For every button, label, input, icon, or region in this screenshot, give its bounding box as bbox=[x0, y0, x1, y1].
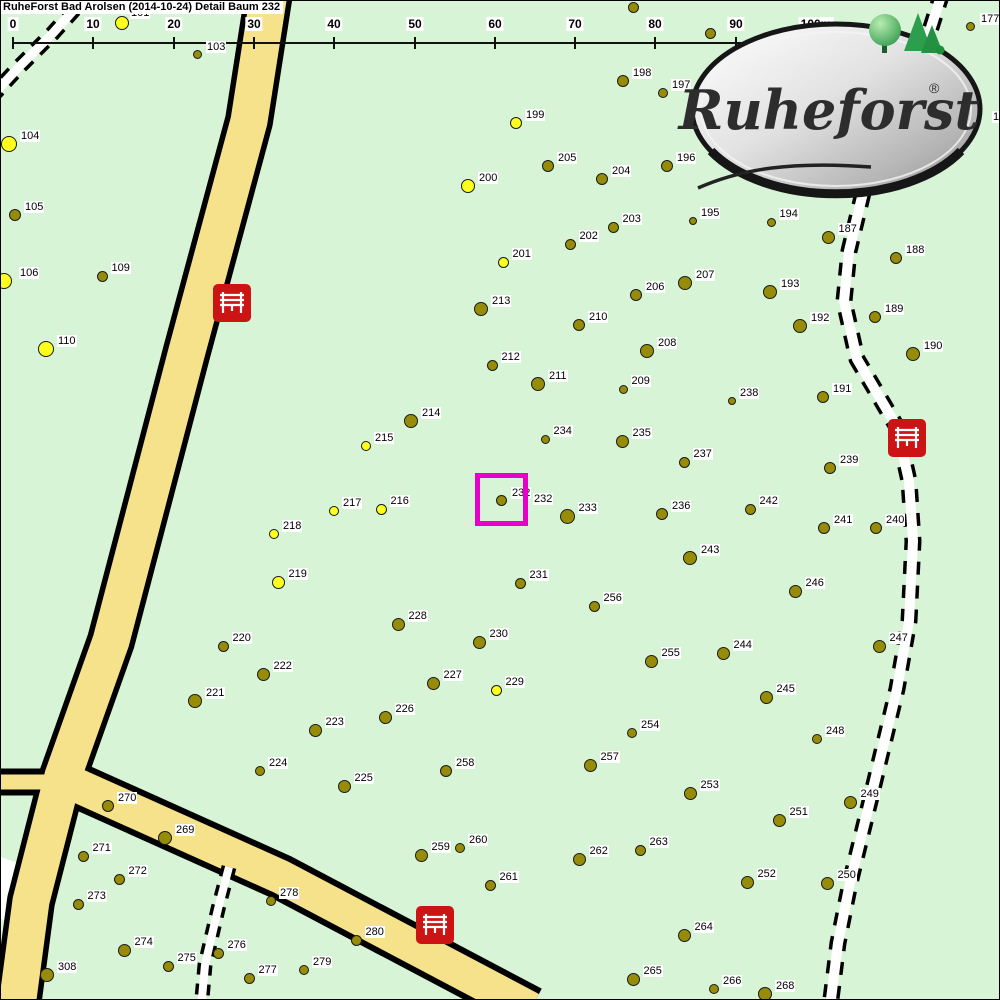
tree-218-label: 218 bbox=[282, 520, 302, 532]
tree-222-label: 222 bbox=[273, 660, 293, 672]
tree-271-label: 271 bbox=[92, 842, 112, 854]
tree-191-marker bbox=[817, 391, 829, 403]
tree-237-label: 237 bbox=[693, 448, 713, 460]
tree-228-label: 228 bbox=[408, 610, 428, 622]
tree-237-marker bbox=[679, 457, 690, 468]
tree-264-label: 264 bbox=[694, 921, 714, 933]
tree-270-label: 270 bbox=[117, 792, 137, 804]
tree-243-marker bbox=[683, 551, 697, 565]
tree-263-label: 263 bbox=[649, 836, 669, 848]
tree-216-label: 216 bbox=[390, 495, 410, 507]
tree-217-marker bbox=[329, 506, 339, 516]
tree-240-marker bbox=[870, 522, 882, 534]
tree-193-label: 193 bbox=[780, 278, 800, 290]
tree-171-label: 171 bbox=[642, 0, 662, 1]
tree-231-marker bbox=[515, 578, 526, 589]
tree-192-marker bbox=[793, 319, 807, 333]
tree-219-label: 219 bbox=[288, 568, 308, 580]
tree-273-label: 273 bbox=[87, 890, 107, 902]
tree-208-label: 208 bbox=[657, 337, 677, 349]
tree-241-marker bbox=[818, 522, 830, 534]
tree-202-label: 202 bbox=[579, 230, 599, 242]
tree-261-label: 261 bbox=[499, 871, 519, 883]
tree-238-marker bbox=[728, 397, 736, 405]
tree-227-marker bbox=[427, 677, 440, 690]
tree-258-label: 258 bbox=[455, 757, 475, 769]
tree-187-label: 187 bbox=[838, 223, 858, 235]
tree-245-label: 245 bbox=[776, 683, 796, 695]
tree-238-label: 238 bbox=[739, 387, 759, 399]
tree-280-marker bbox=[351, 935, 362, 946]
tree-187-marker bbox=[822, 231, 835, 244]
tree-222-marker bbox=[257, 668, 270, 681]
tree-252-marker bbox=[741, 876, 754, 889]
tree-214-marker bbox=[404, 414, 418, 428]
tree-259-label: 259 bbox=[431, 841, 451, 853]
tree-253-marker bbox=[684, 787, 697, 800]
tree-234-marker bbox=[541, 435, 550, 444]
tree-244-label: 244 bbox=[733, 639, 753, 651]
tree-218-marker bbox=[269, 529, 279, 539]
tree-103-label: 103 bbox=[206, 41, 226, 53]
highlight-box-tree-232 bbox=[475, 473, 528, 526]
tree-258-marker bbox=[440, 765, 452, 777]
tree-265-marker bbox=[627, 973, 640, 986]
tree-224-label: 224 bbox=[268, 757, 288, 769]
tree-226-label: 226 bbox=[395, 703, 415, 715]
tree-242-label: 242 bbox=[759, 495, 779, 507]
tree-260-label: 260 bbox=[468, 834, 488, 846]
tree-199-marker bbox=[510, 117, 522, 129]
tree-266-marker bbox=[709, 984, 719, 994]
tree-266-label: 266 bbox=[722, 975, 742, 987]
tree-272-label: 272 bbox=[128, 865, 148, 877]
tree-189-label: 189 bbox=[884, 303, 904, 315]
tree-213-marker bbox=[474, 302, 488, 316]
tree-229-marker bbox=[491, 685, 502, 696]
tree-269-label: 269 bbox=[175, 824, 195, 836]
tree-209-label: 209 bbox=[631, 375, 651, 387]
tree-230-label: 230 bbox=[489, 628, 509, 640]
tree-253-label: 253 bbox=[700, 779, 720, 791]
tree-211-label: 211 bbox=[548, 370, 568, 382]
tree-262-label: 262 bbox=[589, 845, 609, 857]
tree-308-marker bbox=[40, 968, 54, 982]
tree-223-marker bbox=[309, 724, 322, 737]
tree-223-label: 223 bbox=[325, 716, 345, 728]
tree-274-label: 274 bbox=[134, 936, 154, 948]
tree-220-label: 220 bbox=[232, 632, 252, 644]
tree-198-label: 198 bbox=[632, 67, 652, 79]
tree-275-label: 275 bbox=[177, 952, 197, 964]
tree-242-marker bbox=[745, 504, 756, 515]
tree-221-label: 221 bbox=[205, 687, 225, 699]
tree-200-label: 200 bbox=[478, 172, 498, 184]
tree-230-marker bbox=[473, 636, 486, 649]
tree-225-label: 225 bbox=[354, 772, 374, 784]
tree-224-marker bbox=[255, 766, 265, 776]
tree-259-marker bbox=[415, 849, 428, 862]
tree-276-label: 276 bbox=[227, 939, 247, 951]
tree-191-label: 191 bbox=[832, 383, 852, 395]
tree-101-marker bbox=[115, 16, 129, 30]
tree-249-label: 249 bbox=[860, 788, 880, 800]
tree-219-marker bbox=[272, 576, 285, 589]
tree-200-marker bbox=[461, 179, 475, 193]
tree-209-marker bbox=[619, 385, 628, 394]
tree-278-marker bbox=[266, 896, 276, 906]
tree-106-marker bbox=[0, 273, 12, 289]
tree-241-label: 241 bbox=[833, 514, 853, 526]
tree-229-label: 229 bbox=[505, 676, 525, 688]
tree-189-marker bbox=[869, 311, 881, 323]
tree-256-label: 256 bbox=[603, 592, 623, 604]
tree-109-label: 109 bbox=[111, 262, 131, 274]
tree-228-marker bbox=[392, 618, 405, 631]
tree-214-label: 214 bbox=[421, 407, 441, 419]
tree-244-marker bbox=[717, 647, 730, 660]
tree-255-marker bbox=[645, 655, 658, 668]
tree-221-marker bbox=[188, 694, 202, 708]
tree-188-marker bbox=[890, 252, 902, 264]
tree-110-marker bbox=[38, 341, 54, 357]
tree-105-marker bbox=[9, 209, 21, 221]
tree-212-label: 212 bbox=[501, 351, 521, 363]
tree-192-label: 192 bbox=[810, 312, 830, 324]
tree-210-label: 210 bbox=[588, 311, 608, 323]
tree-256-marker bbox=[589, 601, 600, 612]
tree-225-marker bbox=[338, 780, 351, 793]
tree-233-marker bbox=[560, 509, 575, 524]
tree-110-label: 110 bbox=[57, 335, 77, 347]
tree-207-label: 207 bbox=[695, 269, 715, 281]
tree-268-label: 268 bbox=[775, 980, 795, 992]
tree-215-marker bbox=[361, 441, 371, 451]
tree-201-label: 201 bbox=[512, 248, 532, 260]
tree-275-marker bbox=[163, 961, 174, 972]
tree-278-label: 278 bbox=[279, 887, 299, 899]
tree-226-marker bbox=[379, 711, 392, 724]
tree-206-marker bbox=[630, 289, 642, 301]
tree-251-label: 251 bbox=[789, 806, 809, 818]
tree-207-marker bbox=[678, 276, 692, 290]
tree-239-label: 239 bbox=[839, 454, 859, 466]
tree-268-marker bbox=[758, 987, 772, 1000]
tree-273-marker bbox=[73, 899, 84, 910]
tree-233-label: 233 bbox=[578, 502, 598, 514]
tree-194-marker bbox=[767, 218, 776, 227]
tree-190-marker bbox=[906, 347, 920, 361]
tree-250-label: 250 bbox=[837, 869, 857, 881]
tree-248-marker bbox=[812, 734, 822, 744]
tree-263-marker bbox=[635, 845, 646, 856]
tree-236-label: 236 bbox=[671, 500, 691, 512]
tree-105-label: 105 bbox=[24, 201, 44, 213]
tree-213-label: 213 bbox=[491, 295, 511, 307]
tree-210-marker bbox=[573, 319, 585, 331]
tree-190-label: 190 bbox=[923, 340, 943, 352]
tree-243-label: 243 bbox=[700, 544, 720, 556]
tree-215-label: 215 bbox=[374, 432, 394, 444]
tree-198-marker bbox=[617, 75, 629, 87]
tree-104-marker bbox=[1, 136, 17, 152]
tree-274-marker bbox=[118, 944, 131, 957]
tree-248-label: 248 bbox=[825, 725, 845, 737]
tree-277-label: 277 bbox=[258, 964, 278, 976]
map-title: RuheForst Bad Arolsen (2014-10-24) Detai… bbox=[1, 1, 283, 14]
tree-205-marker bbox=[542, 160, 554, 172]
tree-246-label: 246 bbox=[805, 577, 825, 589]
tree-260-marker bbox=[455, 843, 465, 853]
tree-255-label: 255 bbox=[661, 647, 681, 659]
tree-257-label: 257 bbox=[600, 751, 620, 763]
tree-277-marker bbox=[244, 973, 255, 984]
tree-216-marker bbox=[376, 504, 387, 515]
tree-249-marker bbox=[844, 796, 857, 809]
tree-272-marker bbox=[114, 874, 125, 885]
tree-211-marker bbox=[531, 377, 545, 391]
tree-235-label: 235 bbox=[632, 427, 652, 439]
tree-247-marker bbox=[873, 640, 886, 653]
tree-203-marker bbox=[608, 222, 619, 233]
tree-261-marker bbox=[485, 880, 496, 891]
tree-104-label: 104 bbox=[20, 130, 40, 142]
tree-202-marker bbox=[565, 239, 576, 250]
tree-279-marker bbox=[299, 965, 309, 975]
tree-199-label: 199 bbox=[525, 109, 545, 121]
logo-registered-mark: ® bbox=[929, 80, 940, 96]
tree-240-label: 240 bbox=[885, 514, 905, 526]
tree-250-marker bbox=[821, 877, 834, 890]
tree-280-label: 280 bbox=[365, 926, 385, 938]
tree-251-marker bbox=[773, 814, 786, 827]
tree-270-marker bbox=[102, 800, 114, 812]
tree-279-label: 279 bbox=[312, 956, 332, 968]
tree-106-label: 106 bbox=[19, 267, 39, 279]
tree-208-marker bbox=[640, 344, 654, 358]
tree-103-marker bbox=[193, 50, 202, 59]
tree-206-label: 206 bbox=[645, 281, 665, 293]
map-canvas: 0102030405060708090100m 1011031711771041… bbox=[0, 0, 1000, 1000]
tree-197-marker bbox=[658, 88, 668, 98]
tree-109-marker bbox=[97, 271, 108, 282]
tree-264-marker bbox=[678, 929, 691, 942]
tree-269-marker bbox=[158, 831, 172, 845]
tree-254-marker bbox=[627, 728, 637, 738]
tree-254-label: 254 bbox=[640, 719, 660, 731]
tree-203-label: 203 bbox=[622, 213, 642, 225]
tree-262-marker bbox=[573, 853, 586, 866]
tree-271-marker bbox=[78, 851, 89, 862]
tree-257-marker bbox=[584, 759, 597, 772]
tree-236-marker bbox=[656, 508, 668, 520]
tree-204-label: 204 bbox=[611, 165, 631, 177]
tree-212-marker bbox=[487, 360, 498, 371]
tree-201-marker bbox=[498, 257, 509, 268]
tree-308-label: 308 bbox=[57, 961, 77, 973]
tree-276-marker bbox=[213, 948, 224, 959]
highlighted-tree-label: 232 bbox=[533, 493, 553, 505]
tree-247-label: 247 bbox=[889, 632, 909, 644]
tree-239-marker bbox=[824, 462, 836, 474]
tree-245-marker bbox=[760, 691, 773, 704]
tree-265-label: 265 bbox=[643, 965, 663, 977]
tree-234-label: 234 bbox=[553, 425, 573, 437]
tree-195-marker bbox=[689, 217, 697, 225]
tree-204-marker bbox=[596, 173, 608, 185]
tree-217-label: 217 bbox=[342, 497, 362, 509]
tree-227-label: 227 bbox=[443, 669, 463, 681]
tree-231-label: 231 bbox=[529, 569, 549, 581]
tree-171-marker bbox=[628, 2, 639, 13]
tree-193-marker bbox=[763, 285, 777, 299]
ruheforst-logo: Ruheforst ® bbox=[671, 1, 1000, 211]
tree-235-marker bbox=[616, 435, 629, 448]
tree-220-marker bbox=[218, 641, 229, 652]
tree-252-label: 252 bbox=[757, 868, 777, 880]
tree-246-marker bbox=[789, 585, 802, 598]
tree-205-label: 205 bbox=[557, 152, 577, 164]
tree-188-label: 188 bbox=[905, 244, 925, 256]
